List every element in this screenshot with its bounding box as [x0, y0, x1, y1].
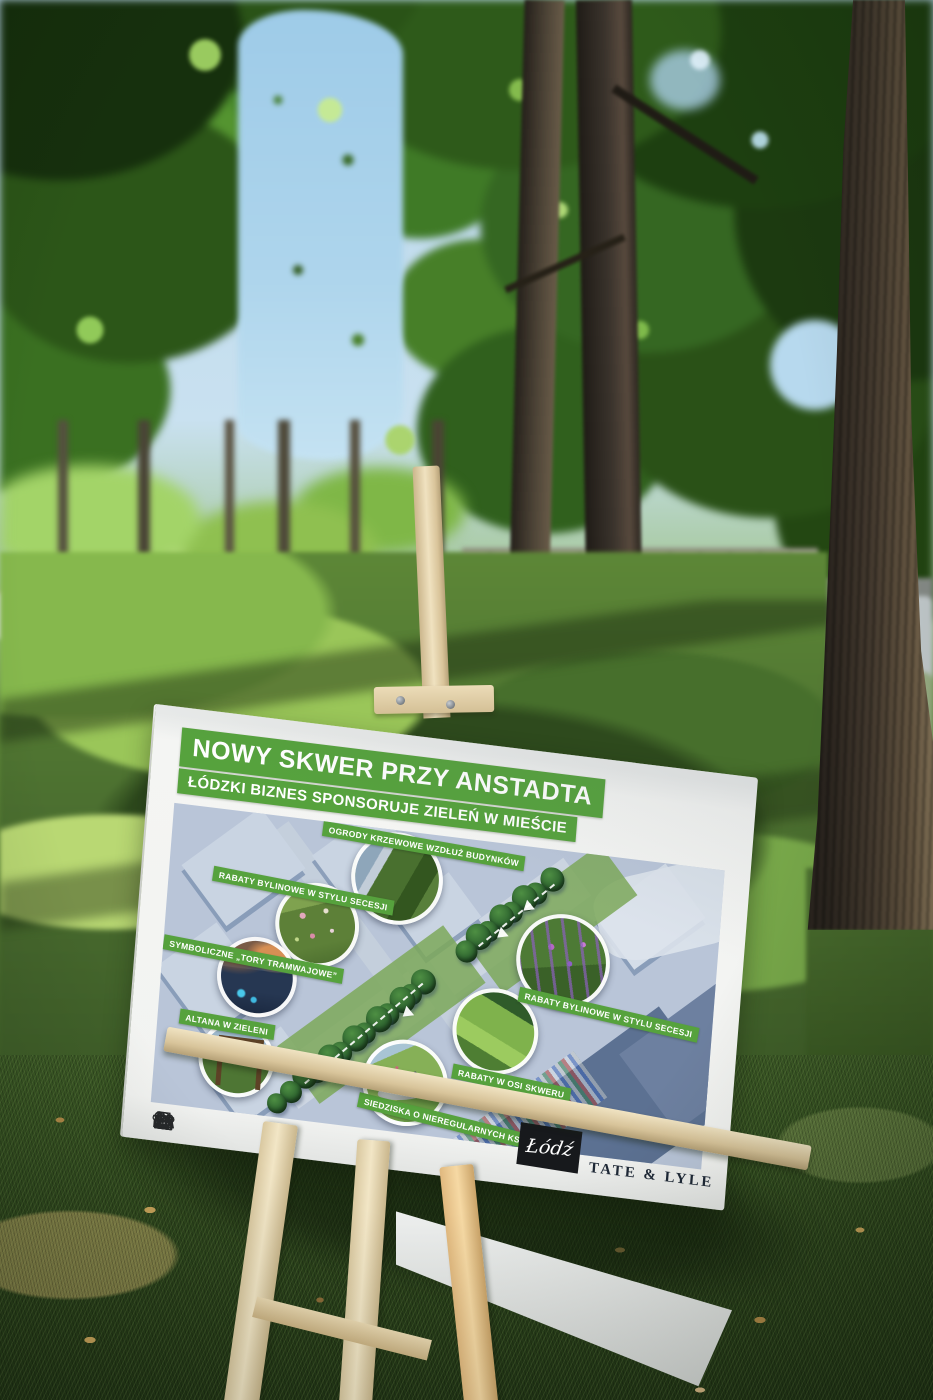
lodz-city-logo: Łódź: [516, 1122, 582, 1173]
easel-screw-left: [396, 696, 405, 705]
park-photo-scene: 561 NOWY SKWER PRZY ANSTADTA ŁÓDZKI BIZN…: [0, 0, 933, 1400]
easel-screw-right: [446, 700, 455, 709]
easel-bracket: [374, 685, 494, 714]
gazebo-with-trees-icon: [150, 1107, 176, 1134]
lodz-logo-script: Łódź: [524, 1135, 575, 1161]
